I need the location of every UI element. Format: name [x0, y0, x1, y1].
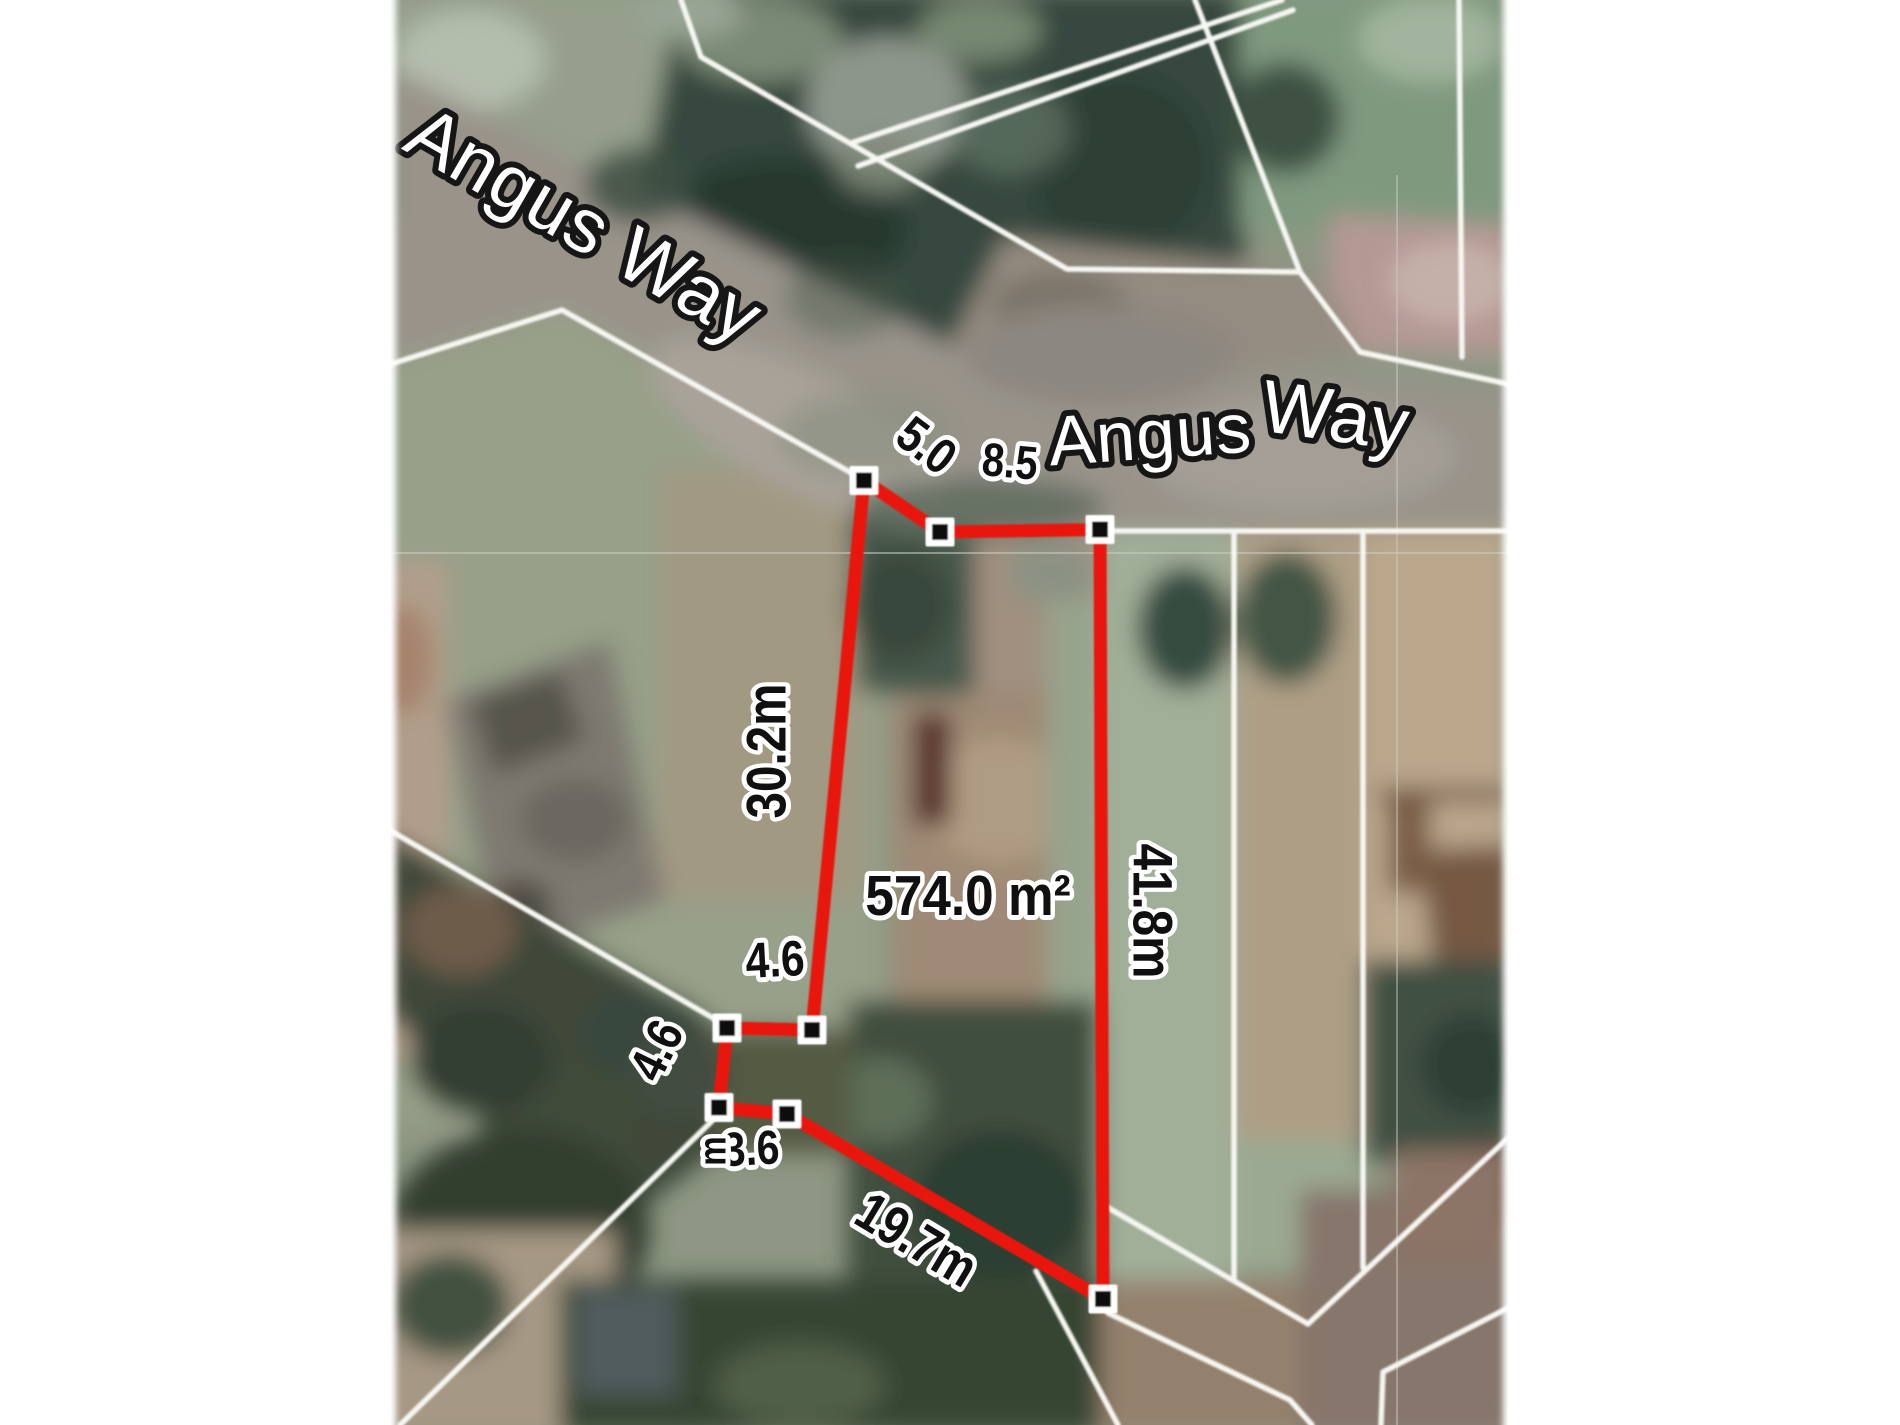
svg-text:Angus: Angus [1046, 388, 1254, 480]
svg-text:4.6: 4.6 [744, 930, 806, 989]
svg-text:41.8m: 41.8m [1120, 844, 1182, 979]
svg-text:m: m [691, 1136, 734, 1165]
svg-text:8.5: 8.5 [980, 434, 1040, 490]
svg-text:30.2m: 30.2m [736, 684, 798, 819]
svg-text:574.0 m²: 574.0 m² [865, 864, 1070, 927]
